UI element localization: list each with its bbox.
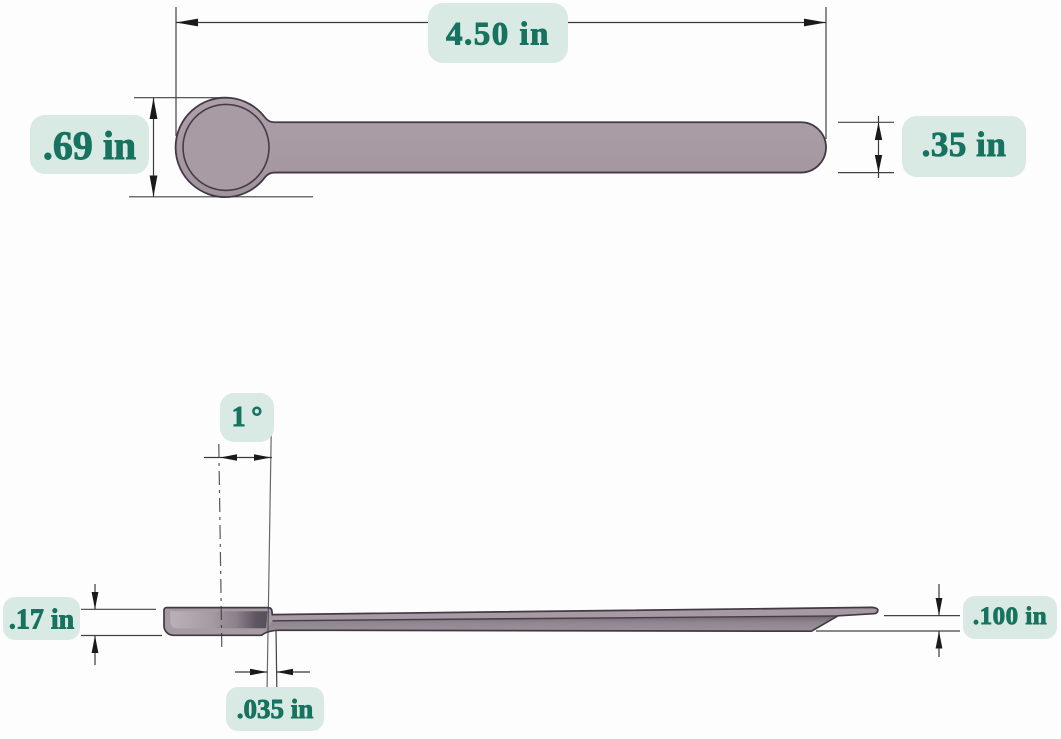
svg-text:4.50 in: 4.50 in (446, 17, 550, 53)
svg-text:1 °: 1 ° (232, 402, 263, 433)
svg-text:.35 in: .35 in (922, 125, 1007, 164)
svg-text:.035 in: .035 in (237, 694, 314, 724)
svg-text:.100 in: .100 in (973, 603, 1047, 630)
svg-text:.69 in: .69 in (43, 123, 136, 168)
svg-text:.17 in: .17 in (9, 605, 75, 636)
